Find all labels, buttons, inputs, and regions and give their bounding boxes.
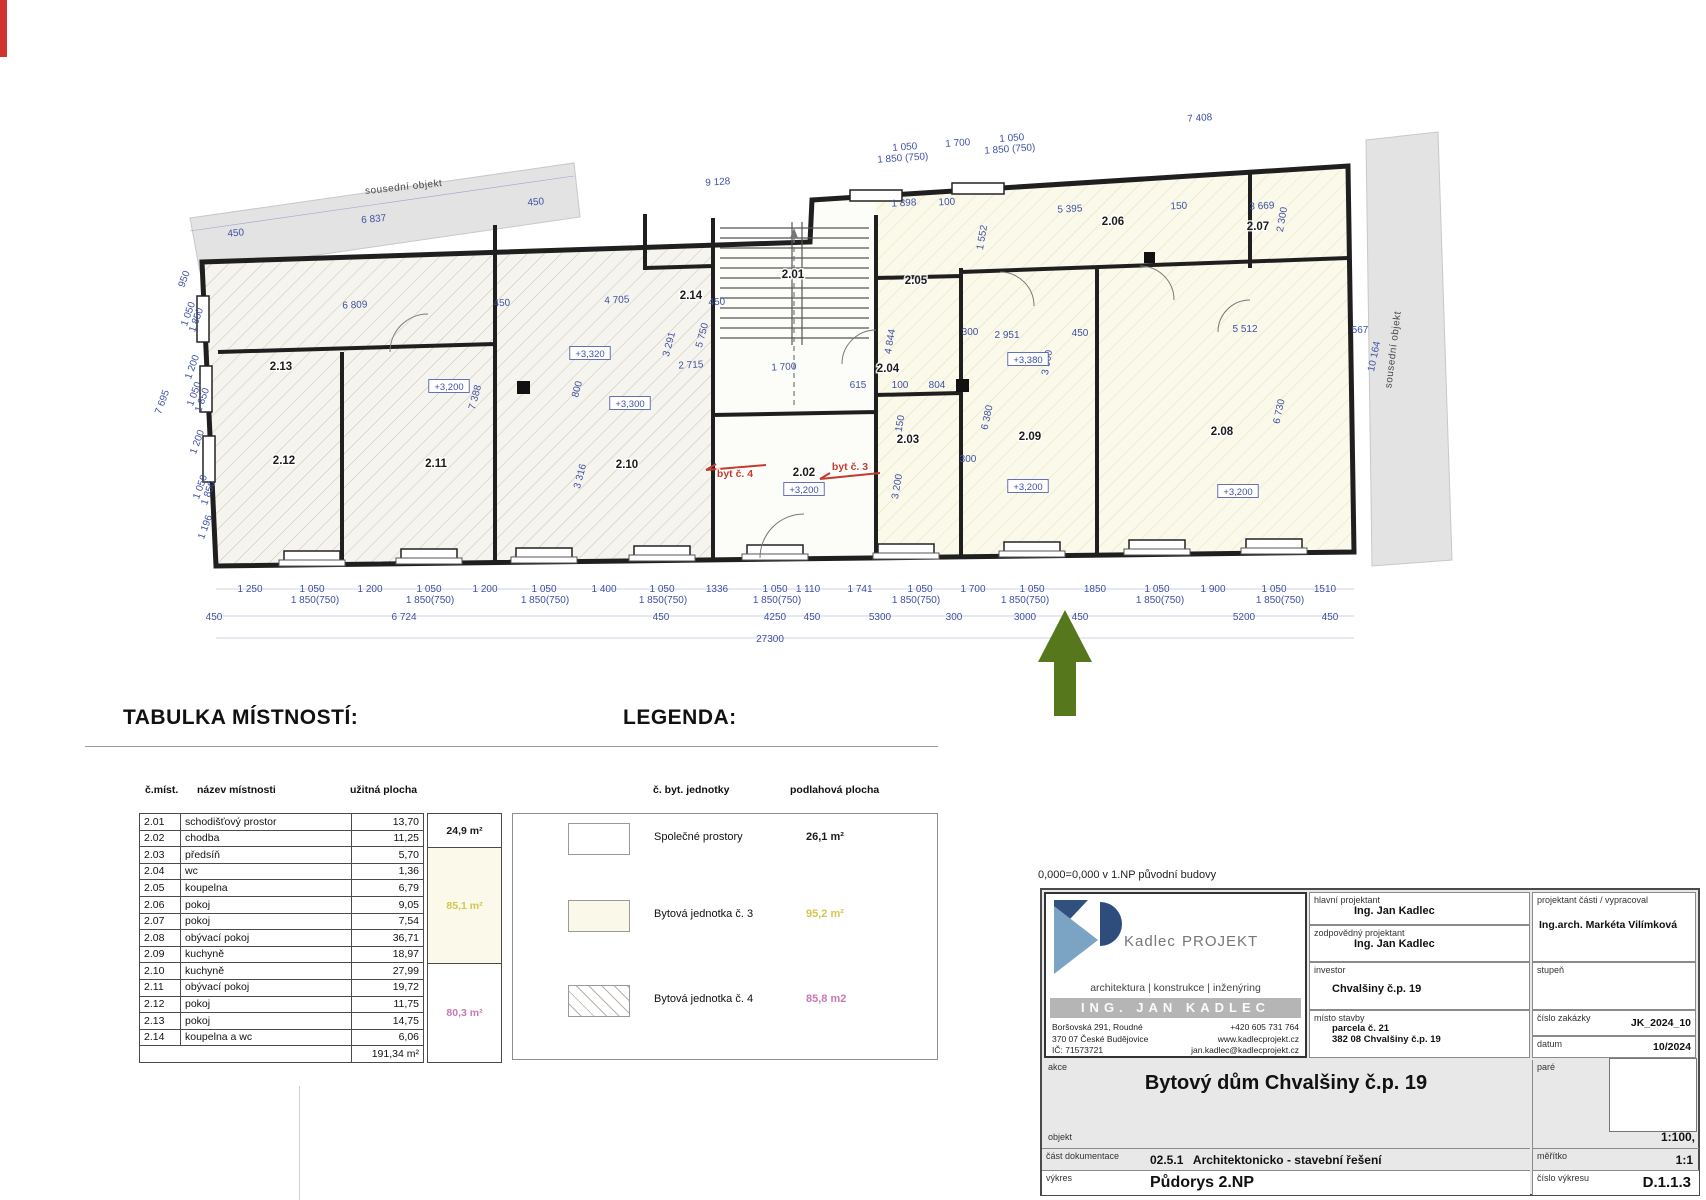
dimension-label: 1 850(750): [639, 595, 687, 606]
room-number: 2.08: [140, 930, 181, 947]
room-number: 2.10: [140, 963, 181, 980]
dimension-label: 1 400: [591, 584, 616, 595]
room-area: 27,99: [352, 963, 424, 980]
dimension-label: 9 128: [705, 176, 731, 189]
table-row: 2.12pokoj11,75: [140, 996, 424, 1013]
dimension-label: 300: [962, 327, 979, 338]
dimension-label: 450: [206, 612, 223, 623]
apartment-unit-label: byt č. 4: [717, 468, 753, 480]
dimension-label: 27300: [756, 634, 784, 645]
room-number-label: 2.03: [897, 434, 919, 446]
room-number-label: 2.06: [1102, 216, 1124, 228]
dimension-label: 950: [177, 269, 193, 289]
unit-area-groups: 24,9 m² 85,1 m² 80,3 m²: [427, 813, 502, 1063]
value-documentation-part: 02.5.1 Architektonicko - stavební řešení: [1150, 1153, 1382, 1167]
value-main-designer: Ing. Jan Kadlec: [1354, 905, 1529, 917]
elevation-label: +3,200: [789, 485, 818, 496]
dimension-label: 1 250: [237, 584, 262, 595]
engineer-name-band: ING. JAN KADLEC: [1050, 998, 1301, 1018]
room-area: 11,25: [352, 830, 424, 847]
table-row: 2.11obývací pokoj19,72: [140, 979, 424, 996]
value-responsible-designer: Ing. Jan Kadlec: [1354, 938, 1529, 950]
dimension-label: 150: [1170, 201, 1188, 213]
group-common-area: 24,9 m²: [428, 814, 501, 847]
table-row: 2.06pokoj9,05: [140, 896, 424, 913]
company-contacts: +420 605 731 764Boršovská 291, Roudné ww…: [1052, 1022, 1299, 1057]
room-number: 2.12: [140, 996, 181, 1013]
value-drawing-number: D.1.1.3: [1643, 1174, 1691, 1191]
room-number-label: 2.04: [877, 363, 900, 375]
label-order-number: číslo zakázky: [1533, 1011, 1591, 1023]
dimension-label: 450: [227, 227, 245, 239]
row-drawing-number: číslo výkresu D.1.1.3: [1532, 1170, 1699, 1195]
room-number-label: 2.14: [680, 290, 703, 302]
cell-investor: investor Chvalšiny č.p. 19: [1309, 962, 1530, 1010]
legend-area-value: 85,8 m2: [806, 993, 846, 1005]
value-site-parcel: parcela č. 21: [1332, 1023, 1529, 1034]
room-area: 14,75: [352, 1013, 424, 1030]
label-part-designer: projektant části / vypracoval: [1533, 893, 1695, 905]
dimension-label: 300: [960, 454, 977, 465]
room-area: 11,75: [352, 996, 424, 1013]
room-area: 5,70: [352, 847, 424, 864]
project-title: Bytový dům Chvalšiny č.p. 19: [1042, 1072, 1530, 1095]
group-unit4-area: 80,3 m²: [428, 963, 501, 1062]
dimension-label: 2 715: [678, 359, 704, 371]
room-number-label: 2.09: [1019, 431, 1041, 443]
dimension-label: 5 395: [1057, 203, 1083, 215]
cell-date: datum 10/2024: [1532, 1036, 1696, 1058]
screenshot-edge-artifact: [0, 0, 7, 57]
table-row: 2.03předsíň5,70: [140, 847, 424, 864]
room-number: 2.11: [140, 979, 181, 996]
room-number-label: 2.05: [905, 275, 928, 287]
dimension-label: 1 898: [891, 197, 917, 209]
sheet-edge-line: [299, 1086, 300, 1200]
dimension-label: 1 110: [796, 584, 821, 595]
dimension-label: 1 850(750): [1136, 595, 1184, 606]
label-drawing-number: číslo výkresu: [1533, 1171, 1589, 1183]
room-name: kuchyně: [181, 963, 352, 980]
cell-main-designer: hlavní projektant Ing. Jan Kadlec: [1309, 892, 1530, 925]
value-drawing-name: Půdorys 2.NP: [1150, 1174, 1254, 1192]
room-area: 9,05: [352, 896, 424, 913]
label-main-designer: hlavní projektant: [1310, 893, 1529, 905]
table-row: 2.10kuchyně27,99: [140, 963, 424, 980]
dimension-label: 1510: [1314, 584, 1337, 595]
dimension-label: 1 050: [649, 584, 674, 595]
value-part-designer: Ing.arch. Markéta Vilímková: [1539, 919, 1695, 931]
brand-suffix: PROJEKT: [1182, 933, 1258, 950]
sheet: sousední objektsousední objekt 4506 8374…: [0, 0, 1706, 1200]
elevation-label: +3,200: [1223, 487, 1252, 498]
table-row: 2.13pokoj14,75: [140, 1013, 424, 1030]
room-number: 2.01: [140, 814, 181, 831]
apartment-unit-label: byt č. 3: [832, 461, 868, 473]
dimension-label: 1 850(750): [1256, 595, 1304, 606]
room-name: pokoj: [181, 896, 352, 913]
legend-area-value: 95,2 m²: [806, 908, 844, 920]
room-number-label: 2.02: [793, 467, 815, 479]
dimension-label: 1 050: [531, 584, 556, 595]
room-number: 2.13: [140, 1013, 181, 1030]
dimension-label: 450: [804, 612, 821, 623]
table-row-total: 191,34 m²: [140, 1046, 424, 1063]
total-area-value: 191,34 m²: [352, 1046, 424, 1063]
dimension-label: 1 850(750): [1001, 595, 1049, 606]
dimension-label: 1 050: [416, 584, 441, 595]
dimension-label: 3 669: [1249, 200, 1275, 212]
label-site: místo stavby: [1310, 1011, 1529, 1023]
cell-stage: stupeň: [1532, 962, 1696, 1010]
dimension-label: 450: [653, 612, 670, 623]
dimension-label: 450: [493, 298, 511, 310]
room-number-label: 2.13: [270, 361, 292, 373]
legend-box: Společné prostory 26,1 m² Bytová jednotk…: [512, 813, 938, 1060]
col-header-room-name: název místnosti: [197, 784, 276, 796]
dimension-label: 615: [850, 380, 867, 391]
email: jan.kadlec@kadlecprojekt.cz: [1191, 1045, 1299, 1057]
room-area: 18,97: [352, 946, 424, 963]
dimension-label: 3000: [1014, 612, 1037, 623]
elevation-label: +3,320: [575, 349, 604, 360]
legend-row-unit3: Bytová jednotka č. 3 95,2 m²: [513, 900, 937, 934]
copy-number-box: [1609, 1058, 1697, 1132]
dimension-label: 5300: [869, 612, 892, 623]
room-name: koupelna: [181, 880, 352, 897]
room-name: obývací pokoj: [181, 979, 352, 996]
dimension-label: 1 050: [299, 584, 324, 595]
room-name: kuchyně: [181, 946, 352, 963]
table-row: 2.04wc1,36: [140, 863, 424, 880]
datum-note: 0,000=0,000 v 1.NP původní budovy: [1038, 869, 1216, 881]
room-name: koupelna a wc: [181, 1029, 352, 1046]
table-row: 2.07pokoj7,54: [140, 913, 424, 930]
room-number: 2.06: [140, 896, 181, 913]
elevation-label: +3,200: [434, 382, 463, 393]
room-area: 1,36: [352, 863, 424, 880]
dimension-label: 1 050: [1261, 584, 1286, 595]
dimension-label: 804: [929, 380, 946, 391]
room-area: 6,06: [352, 1029, 424, 1046]
room-number: 2.09: [140, 946, 181, 963]
legend-label: Společné prostory: [654, 831, 743, 843]
room-number-label: 2.10: [616, 459, 638, 471]
label-documentation-part: část dokumentace: [1042, 1149, 1119, 1161]
dimension-label: 450: [527, 196, 545, 208]
value-order-number: JK_2024_10: [1631, 1017, 1691, 1029]
room-table: 2.01schodišťový prostor13,702.02chodba11…: [139, 813, 424, 1063]
row-drawing: výkres Půdorys 2.NP: [1042, 1170, 1530, 1195]
dimension-label: 1 050: [762, 584, 787, 595]
kadlec-logo-icon: [1054, 900, 1126, 978]
cell-part-designer: projektant části / vypracoval Ing.arch. …: [1532, 892, 1696, 962]
room-number-label: 2.11: [425, 458, 447, 470]
room-number-label: 2.07: [1247, 221, 1269, 233]
room-area: 6,79: [352, 880, 424, 897]
dimension-label: 450: [1072, 612, 1089, 623]
label-stage: stupeň: [1533, 963, 1695, 975]
phone: +420 605 731 764: [1230, 1022, 1299, 1034]
dimension-label: 5 512: [1232, 324, 1257, 335]
table-row: 2.08obývací pokoj36,71: [140, 930, 424, 947]
room-area: 36,71: [352, 930, 424, 947]
room-name: pokoj: [181, 913, 352, 930]
cell-copy: paré 1:100,: [1532, 1060, 1699, 1148]
dimension-label: 1 050: [1019, 584, 1044, 595]
dimension-label: 1 850(750): [753, 595, 801, 606]
room-number-label: 2.12: [273, 455, 295, 467]
room-name: pokoj: [181, 996, 352, 1013]
brand-tagline: architektura | konstrukce | inženýring: [1046, 982, 1305, 994]
dimension-label: 450: [1072, 328, 1089, 339]
dimension-label: 6 724: [391, 612, 416, 623]
dimension-label: 1 850(750): [406, 595, 454, 606]
room-number: 2.07: [140, 913, 181, 930]
dimension-label: 4250: [764, 612, 787, 623]
legend-label: Bytová jednotka č. 3: [654, 908, 753, 920]
value-investor: Chvalšiny č.p. 19: [1332, 983, 1529, 995]
dimension-label: 1 050: [1144, 584, 1169, 595]
dimension-label: 1 850 (750): [877, 151, 929, 166]
room-number: 2.02: [140, 830, 181, 847]
legend-heading: LEGENDA:: [623, 706, 737, 730]
dimension-label: 450: [1322, 612, 1339, 623]
label-investor: investor: [1310, 963, 1529, 975]
address-line2: 370 07 České Budějovice: [1052, 1034, 1148, 1044]
dimension-label: 1 050: [907, 584, 932, 595]
green-pointer-arrow: [1038, 610, 1092, 716]
label-responsible-designer: zodpovědný projektant: [1310, 926, 1529, 938]
dimension-label: 7 408: [1187, 112, 1213, 125]
heading-rule: [85, 746, 938, 747]
label-drawing: výkres: [1042, 1171, 1072, 1183]
room-name: schodišťový prostor: [181, 814, 352, 831]
dimension-label: 1 850 (750): [984, 142, 1036, 157]
dimension-label: 6 809: [342, 299, 368, 311]
address-line1: Boršovská 291, Roudné: [1052, 1022, 1143, 1032]
legend-row-unit4: Bytová jednotka č. 4 85,8 m2: [513, 985, 937, 1019]
cell-site: místo stavby parcela č. 21 382 08 Chvalš…: [1309, 1010, 1530, 1058]
swatch-unit4: [568, 985, 630, 1017]
label-project: akce: [1044, 1060, 1067, 1072]
table-row: 2.14koupelna a wc6,06: [140, 1029, 424, 1046]
dimension-label: 1 741: [847, 584, 872, 595]
cell-responsible-designer: zodpovědný projektant Ing. Jan Kadlec: [1309, 925, 1530, 962]
dimension-label: 1 200: [472, 584, 497, 595]
room-area: 7,54: [352, 913, 424, 930]
dimension-label: 1 700: [960, 584, 985, 595]
dimension-label: 1 850(750): [892, 595, 940, 606]
room-area: 13,70: [352, 814, 424, 831]
value-scale: 1:1: [1676, 1153, 1693, 1167]
room-table-body: 2.01schodišťový prostor13,702.02chodba11…: [140, 814, 424, 1046]
room-number-label: 2.08: [1211, 426, 1234, 438]
dimension-label: 1 850(750): [291, 595, 339, 606]
room-area: 19,72: [352, 979, 424, 996]
dimension-label: 6 837: [361, 213, 387, 226]
elevation-label: +3,380: [1013, 355, 1042, 366]
dimension-label: 1 700: [771, 361, 797, 373]
elevation-label: +3,300: [615, 399, 644, 410]
label-object: objekt: [1044, 1130, 1072, 1142]
total-spacer: [140, 1046, 352, 1063]
dimension-label: 1 200: [357, 584, 382, 595]
table-row: 2.01schodišťový prostor13,70: [140, 814, 424, 831]
logo-cell: Kadlec PROJEKT architektura | konstrukce…: [1044, 892, 1307, 1058]
room-name: předsíň: [181, 847, 352, 864]
legend-label: Bytová jednotka č. 4: [654, 993, 753, 1005]
group-unit3-area: 85,1 m²: [428, 847, 501, 963]
cell-order-number: číslo zakázky JK_2024_10: [1532, 1010, 1696, 1036]
room-table-heading: TABULKA MÍSTNOSTÍ:: [123, 706, 358, 730]
room-name: chodba: [181, 830, 352, 847]
dimension-label: 7 695: [153, 388, 172, 416]
col-header-unit-no: č. byt. jednotky: [653, 784, 729, 796]
title-block: Kadlec PROJEKT architektura | konstrukce…: [1040, 888, 1700, 1196]
col-header-room-no: č.míst.: [145, 784, 178, 796]
col-header-unit-area: podlahová plocha: [790, 784, 879, 796]
room-number: 2.14: [140, 1029, 181, 1046]
dimension-label: 1 900: [1200, 584, 1225, 595]
value-site-address: 382 08 Chvalšiny č.p. 19: [1332, 1034, 1529, 1045]
dimension-label: 1850: [1084, 584, 1107, 595]
dimension-label: 300: [946, 612, 963, 623]
stair-direction-arrow: [790, 228, 798, 238]
room-number: 2.04: [140, 863, 181, 880]
room-name: pokoj: [181, 1013, 352, 1030]
brand-name: Kadlec PROJEKT: [1124, 926, 1258, 952]
table-row: 2.02chodba11,25: [140, 830, 424, 847]
dimension-label: 100: [892, 380, 909, 391]
table-row: 2.05koupelna6,79: [140, 880, 424, 897]
dimension-label: 1 700: [945, 137, 971, 150]
room-number: 2.05: [140, 880, 181, 897]
company-id: IČ: 71573721: [1052, 1045, 1103, 1055]
website: www.kadlecprojekt.cz: [1218, 1034, 1299, 1046]
dimension-label: 4 705: [604, 294, 630, 306]
scale-note: 1:100,: [1661, 1130, 1695, 1144]
dimension-label: 2 951: [994, 330, 1019, 341]
swatch-unit3: [568, 900, 630, 932]
swatch-common: [568, 823, 630, 855]
dimension-label: 1 850(750): [521, 595, 569, 606]
dimension-label: 100: [938, 197, 956, 209]
legend-area-value: 26,1 m²: [806, 831, 844, 843]
label-date: datum: [1533, 1037, 1562, 1049]
legend-row-common: Společné prostory 26,1 m²: [513, 823, 937, 857]
value-date: 10/2024: [1653, 1041, 1691, 1053]
dimension-label: 567: [1352, 325, 1369, 336]
row-documentation-part: část dokumentace 02.5.1 Architektonicko …: [1042, 1148, 1530, 1171]
dimension-label: 1336: [706, 584, 729, 595]
row-scale: měřítko 1:1: [1532, 1148, 1699, 1171]
room-name: wc: [181, 863, 352, 880]
room-number-label: 2.01: [782, 269, 805, 281]
dimension-label: 450: [708, 297, 726, 309]
room-number: 2.03: [140, 847, 181, 864]
col-header-floor-area: užitná plocha: [350, 784, 417, 796]
dimension-label: 5200: [1233, 612, 1256, 623]
label-scale: měřítko: [1533, 1149, 1567, 1161]
elevation-label: +3,200: [1013, 482, 1042, 493]
room-name: obývací pokoj: [181, 930, 352, 947]
table-row: 2.09kuchyně18,97: [140, 946, 424, 963]
